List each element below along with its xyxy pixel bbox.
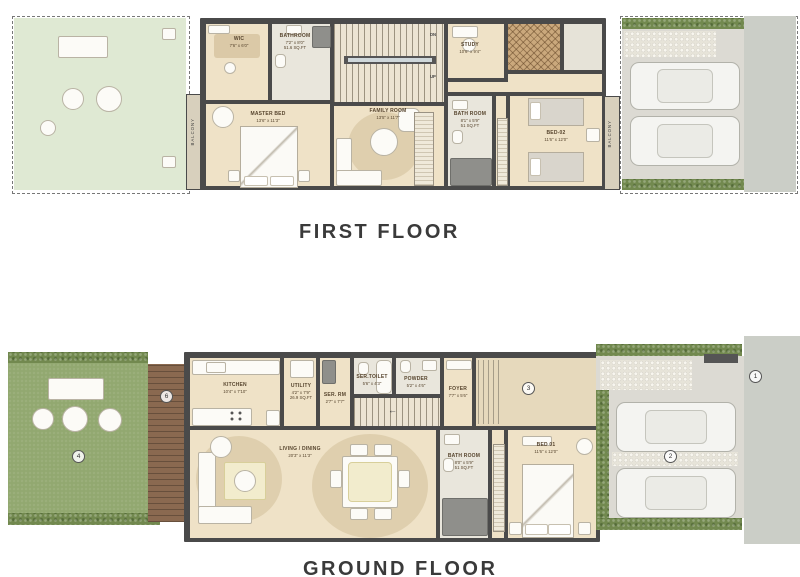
armchair — [210, 436, 232, 458]
nightstand — [509, 522, 522, 535]
label-bed-02: BED-02 11'6" x 12'0" — [544, 130, 567, 142]
garden-chair — [98, 408, 122, 432]
label-master-bed: MASTER BED 13'6" x 11'3" — [250, 111, 285, 123]
staircase-ground — [354, 398, 440, 426]
label-bath-ground: BATH ROOM 8'0" x 5'9" 51 SQ.FT — [448, 453, 480, 471]
pillow — [530, 158, 541, 176]
carpet-runner — [493, 444, 505, 532]
corridor — [508, 74, 602, 82]
dining-chair — [330, 470, 342, 488]
sink — [422, 360, 437, 371]
floor-plan-sheet: BALCONY BALCONY — [0, 0, 800, 577]
label-ser-rm: SER. RM 2'7" x 7'7" — [324, 392, 346, 404]
label-bathroom: BATHROOM 7'2" x 8'0" 51.6 SQ.FT — [280, 33, 311, 51]
desk — [452, 26, 478, 38]
pillow — [270, 176, 294, 186]
nightstand — [228, 170, 240, 182]
entry-steps — [478, 360, 502, 424]
shower — [442, 498, 488, 536]
sofa — [336, 170, 382, 186]
corridor — [448, 82, 602, 92]
hedge — [596, 518, 742, 530]
wardrobe — [208, 25, 230, 34]
carpet-runner — [414, 112, 434, 186]
trellis-plant — [534, 40, 554, 54]
tree — [738, 14, 798, 84]
tree — [740, 462, 796, 524]
hedge — [622, 18, 744, 29]
toilet — [275, 54, 286, 68]
stair-up-label: UP — [430, 74, 436, 79]
car-icon — [616, 402, 736, 452]
tree — [36, 2, 88, 42]
garden-table — [62, 406, 88, 432]
label-powder: POWDER 5'2" x 4'6" — [404, 376, 428, 388]
tree — [724, 322, 796, 402]
dining-chair — [350, 508, 368, 520]
car-icon — [616, 468, 736, 518]
balcony-left-label: BALCONY — [190, 118, 195, 146]
dining-chair — [374, 508, 392, 520]
sofa — [198, 506, 252, 524]
garden-chair — [32, 408, 54, 430]
toilet — [400, 360, 411, 373]
ground-floor-title: GROUND FLOOR — [303, 558, 497, 577]
planter — [162, 156, 176, 168]
stair-glass — [348, 58, 432, 62]
stool — [224, 62, 236, 74]
terrace-table — [96, 86, 122, 112]
tree — [20, 506, 70, 552]
trellis-plant — [512, 28, 534, 44]
first-floor-title: FIRST FLOOR — [299, 221, 460, 244]
marker-road: 1 — [749, 370, 762, 383]
pillow — [548, 524, 571, 535]
tree — [730, 392, 794, 468]
paver-lattice — [600, 360, 692, 390]
balcony-right-label: BALCONY — [607, 120, 612, 148]
dining-chair — [398, 470, 410, 488]
label-wic: WIC 7'6" x 6'0" — [230, 36, 249, 48]
pillow — [244, 176, 268, 186]
hedge — [622, 179, 744, 190]
nightstand — [578, 522, 591, 535]
stair-direction-arrow: ← — [388, 406, 397, 415]
car-icon — [630, 116, 740, 166]
label-bed-01: BED 01 11'6" x 12'0" — [534, 442, 557, 454]
hedge — [596, 390, 609, 518]
nightstand — [298, 170, 310, 182]
carpet-runner — [497, 118, 508, 186]
sink — [206, 362, 226, 373]
label-family-room: FAMILY ROOM 13'5" x 11'7" — [370, 108, 407, 120]
tree — [736, 138, 798, 196]
garden-bench — [48, 378, 104, 400]
cabinet — [322, 360, 336, 384]
marker-deck: 6 — [160, 390, 173, 403]
toilet — [452, 130, 463, 144]
label-utility: UTILITY 4'2" x 7'9" 26.9 SQ.FT — [290, 383, 312, 401]
dining-chair — [374, 444, 392, 456]
marker-entry: 3 — [522, 382, 535, 395]
nightstand — [586, 128, 600, 142]
label-living-dining: LIVING / DINING 20'3" x 11'3" — [279, 446, 320, 458]
armchair — [212, 106, 234, 128]
shoe-cabinet — [446, 360, 472, 370]
porch-roof — [564, 24, 602, 70]
pillow — [525, 524, 548, 535]
dining-table-top — [348, 462, 392, 502]
label-ser-toilet: SER.TOILET 5'6" x 4'3" — [356, 374, 387, 386]
label-bath-first: BATH ROOM 8'1" x 5'9" 51 SQ.FT — [454, 111, 486, 129]
planter — [162, 28, 176, 40]
terrace-chair — [62, 88, 84, 110]
sink — [452, 100, 468, 110]
terrace-stool — [40, 120, 56, 136]
round-table — [370, 128, 398, 156]
hob — [228, 410, 244, 422]
tree — [744, 516, 796, 562]
sink — [444, 434, 460, 445]
label-kitchen: KITCHEN 10'4" x 7'10" — [223, 382, 247, 394]
shower — [312, 26, 331, 48]
stair-dn-label: DN — [430, 32, 436, 37]
wood-deck — [148, 364, 184, 522]
paver-lattice — [624, 31, 716, 57]
fridge — [266, 410, 280, 426]
label-study: STUDY 10'6" x 9'4" — [459, 42, 480, 54]
marker-garden: 4 — [72, 450, 85, 463]
coffee-table — [234, 470, 256, 492]
tree — [600, 334, 644, 358]
car-icon — [630, 62, 740, 110]
sofa — [198, 452, 216, 510]
tree — [742, 80, 798, 140]
marker-driveway: 2 — [664, 450, 677, 463]
label-foyer: FOYER 7'7" x 5'6" — [449, 386, 468, 398]
shower — [450, 158, 492, 186]
dining-chair — [350, 444, 368, 456]
armchair — [576, 438, 593, 455]
pillow — [530, 102, 541, 120]
washer — [290, 360, 314, 378]
